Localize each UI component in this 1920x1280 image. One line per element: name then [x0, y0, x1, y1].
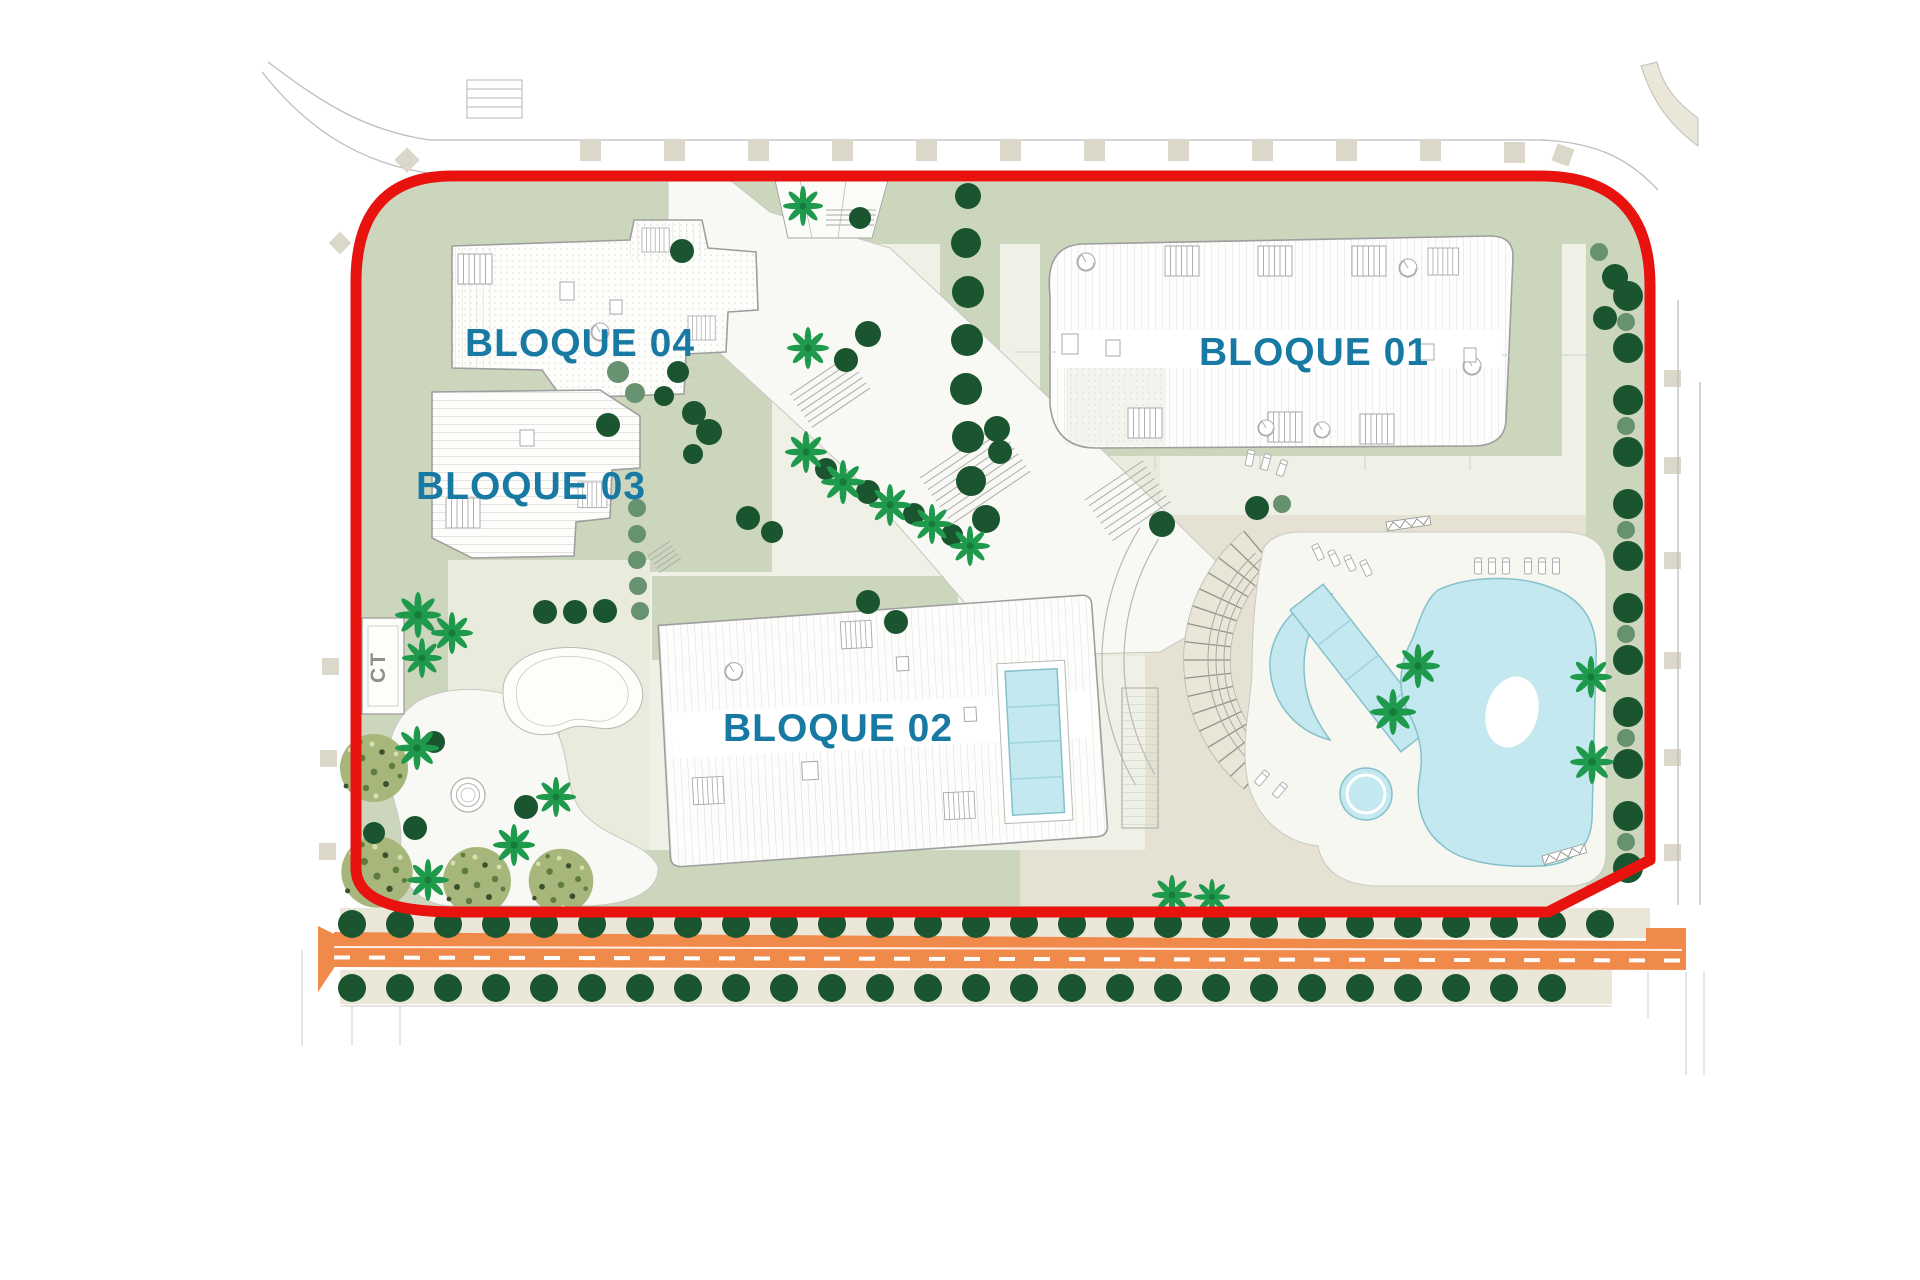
tree	[1346, 974, 1374, 1002]
tree	[761, 521, 783, 543]
palm-tree	[1370, 689, 1416, 735]
tree	[596, 413, 620, 437]
tree	[770, 974, 798, 1002]
tree	[631, 602, 649, 620]
tree	[866, 974, 894, 1002]
pond	[503, 647, 643, 734]
palm-tree	[950, 526, 990, 566]
tree	[1617, 417, 1635, 435]
tree	[578, 974, 606, 1002]
palm-tree	[493, 824, 535, 866]
tree	[736, 506, 760, 530]
tree	[1613, 645, 1643, 675]
tree	[856, 590, 880, 614]
tree	[1613, 697, 1643, 727]
tree	[1106, 974, 1134, 1002]
tree	[1149, 511, 1175, 537]
tree	[1613, 749, 1643, 779]
tree	[1298, 974, 1326, 1002]
palm-tree	[395, 726, 439, 770]
canopy-tree	[340, 734, 408, 802]
top-left-road-curve	[268, 62, 430, 140]
tree	[984, 416, 1010, 442]
tree	[1613, 489, 1643, 519]
tree	[950, 373, 982, 405]
tree	[514, 795, 538, 819]
tree	[1490, 974, 1518, 1002]
palm-tree	[402, 638, 442, 678]
palm-tree	[536, 777, 576, 817]
tree	[338, 910, 366, 938]
tree	[849, 207, 871, 229]
tree	[1613, 593, 1643, 623]
tree	[1617, 521, 1635, 539]
palm-tree	[783, 186, 823, 226]
tree	[914, 974, 942, 1002]
tree	[629, 577, 647, 595]
corner-sidewalk-arc	[1641, 62, 1698, 146]
tree	[1010, 974, 1038, 1002]
tree	[1058, 974, 1086, 1002]
tree	[670, 239, 694, 263]
tree	[1442, 974, 1470, 1002]
tree	[363, 822, 385, 844]
site-plan-svg: BLOQUE 04 BLOQUE 03 BLOQUE 01 BLOQUE 02 …	[0, 0, 1920, 1280]
label-bloque-04: BLOQUE 04	[465, 322, 695, 365]
tree	[722, 974, 750, 1002]
palm-tree	[912, 504, 952, 544]
tree	[593, 599, 617, 623]
tree	[972, 505, 1000, 533]
fountain	[451, 778, 485, 812]
tree	[1617, 313, 1635, 331]
palm-tree	[431, 612, 473, 654]
tree	[962, 974, 990, 1002]
tree	[1273, 495, 1291, 513]
label-ct: CT	[367, 651, 390, 683]
palm-tree	[1396, 644, 1440, 688]
tree	[1613, 541, 1643, 571]
tree	[482, 974, 510, 1002]
tree	[434, 974, 462, 1002]
crosswalk	[467, 80, 522, 118]
tree	[563, 600, 587, 624]
tree	[696, 419, 722, 445]
tree	[884, 610, 908, 634]
palm-tree	[1570, 656, 1612, 698]
tree	[951, 324, 983, 356]
tree	[952, 421, 984, 453]
tree	[628, 551, 646, 569]
tree	[654, 386, 674, 406]
tree	[834, 348, 858, 372]
tree	[533, 600, 557, 624]
tree	[1250, 974, 1278, 1002]
label-bloque-02: BLOQUE 02	[723, 707, 953, 750]
tree	[1593, 306, 1617, 330]
tree	[403, 816, 427, 840]
tree	[1590, 243, 1608, 261]
tree	[1245, 496, 1269, 520]
tree	[956, 466, 986, 496]
right-sidewalk-lines	[1678, 300, 1700, 905]
tree	[1613, 385, 1643, 415]
tree	[1613, 801, 1643, 831]
tree	[1613, 437, 1643, 467]
tree	[674, 974, 702, 1002]
palm-tree	[407, 859, 449, 901]
tree	[625, 383, 645, 403]
tree	[952, 276, 984, 308]
tree	[818, 974, 846, 1002]
palm-tree	[1570, 740, 1614, 784]
tree	[1394, 974, 1422, 1002]
palm-tree	[787, 327, 829, 369]
tree	[855, 321, 881, 347]
site-interior	[340, 170, 1670, 930]
tree	[626, 974, 654, 1002]
tree	[1602, 264, 1628, 290]
palm-tree	[821, 460, 865, 504]
canopy-tree	[529, 849, 594, 914]
tree	[1154, 974, 1182, 1002]
tree	[1617, 833, 1635, 851]
tree	[628, 525, 646, 543]
palm-tree	[869, 484, 911, 526]
tree	[1613, 333, 1643, 363]
tree	[1617, 729, 1635, 747]
tree	[1586, 910, 1614, 938]
tree	[1538, 974, 1566, 1002]
tree	[338, 974, 366, 1002]
tree	[951, 228, 981, 258]
tree	[955, 183, 981, 209]
tree	[1202, 974, 1230, 1002]
tree	[988, 440, 1012, 464]
palm-tree	[785, 431, 827, 473]
tree	[1617, 625, 1635, 643]
deck-pergola	[1122, 688, 1158, 828]
label-bloque-03: BLOQUE 03	[416, 465, 646, 508]
tree	[530, 974, 558, 1002]
label-bloque-01: BLOQUE 01	[1199, 331, 1429, 374]
tree	[386, 974, 414, 1002]
tree	[683, 444, 703, 464]
